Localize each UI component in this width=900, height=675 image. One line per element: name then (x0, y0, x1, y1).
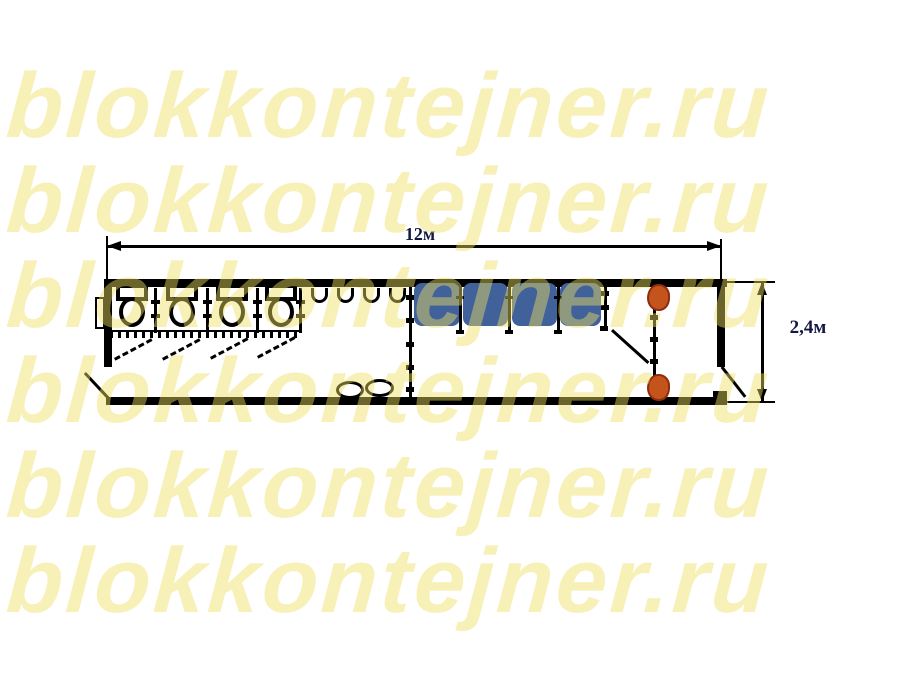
stall-door-swing (257, 336, 295, 358)
heater (647, 284, 670, 311)
wall-right (717, 279, 725, 367)
wall-bottom (106, 397, 727, 405)
wall-hook (363, 288, 380, 303)
floor-plan-image: 12м 2,4м (0, 0, 900, 675)
arrow-right-icon (707, 241, 721, 251)
arrow-left-icon (107, 241, 121, 251)
wall-hook (311, 288, 328, 303)
washbasin (336, 381, 364, 399)
cabin-partition (557, 282, 560, 334)
heater (647, 374, 670, 401)
stall-partition (206, 288, 209, 333)
toilet-fixture (166, 284, 198, 331)
shower-cabin (463, 283, 508, 326)
toilet-fixture (265, 284, 297, 331)
toilet-fixture (116, 284, 148, 331)
floor-plan-drawing: 12м 2,4м (0, 0, 900, 675)
left-wall-step (95, 297, 105, 329)
cabin-partition (459, 282, 462, 334)
cabin-partition (508, 282, 511, 334)
length-dimension-label: 12м (384, 224, 456, 245)
stall-partition (256, 288, 259, 333)
stall-partition (154, 288, 157, 333)
toilet-fixture (216, 284, 248, 331)
door-leaf-left (84, 372, 111, 401)
dimension-line-vertical (761, 283, 764, 401)
shower-cabin (414, 283, 460, 326)
extension-line-right (720, 239, 722, 281)
wall-hook (337, 288, 354, 303)
extension-line-left (106, 236, 108, 281)
stall-front-teeth (110, 332, 302, 338)
width-dimension-label: 2,4м (776, 317, 840, 339)
wall-left (104, 279, 112, 367)
stall-door-swing (114, 338, 152, 360)
stall-door-swing (210, 337, 248, 359)
shower-cabin (560, 283, 601, 326)
arrow-up-icon (757, 282, 767, 295)
wall-corner-bottom-right (713, 391, 727, 405)
shower-cabin (512, 283, 557, 326)
dimension-line-horizontal (107, 245, 721, 248)
wall-hook (389, 288, 406, 303)
stall-door-swing (162, 338, 200, 360)
extension-line-top (726, 281, 775, 283)
washbasin (365, 379, 394, 397)
door-leaf-shower-room (611, 329, 649, 364)
stall-partition (299, 288, 302, 333)
